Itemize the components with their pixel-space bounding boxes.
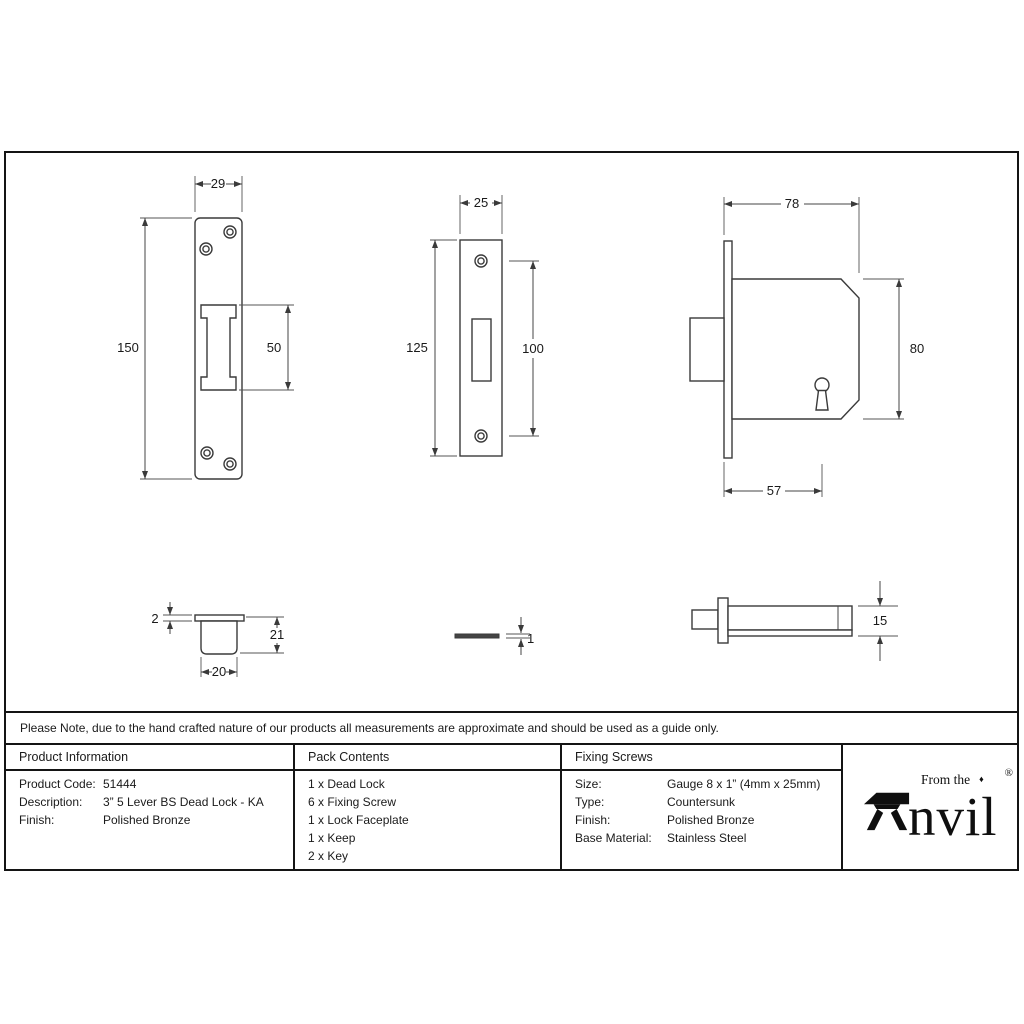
svg-text:15: 15 xyxy=(873,613,887,628)
logo-brand-text: nvil xyxy=(908,789,998,844)
product-information-header: Product Information xyxy=(6,745,295,771)
bolt-profile-view-drawing: 15 xyxy=(692,581,898,661)
svg-text:50: 50 xyxy=(267,340,281,355)
pack-item: 6 x Fixing Screw xyxy=(308,793,560,811)
dim-lock-backset: 57 xyxy=(724,462,822,498)
bolt-base-strip xyxy=(728,630,852,636)
dim-keep-plate-thickness: 2 xyxy=(151,602,192,634)
faceplate-bolt-slot xyxy=(472,319,491,381)
dim-keep-cutout-height: 50 xyxy=(239,305,294,390)
product-information-body: Product Code:51444 Description:3” 5 Leve… xyxy=(6,771,295,869)
product-info-table: Product Information Pack Contents Fixing… xyxy=(6,745,1017,869)
dim-faceplate-screw-centres: 100 xyxy=(509,261,544,436)
svg-text:80: 80 xyxy=(910,341,924,356)
svg-text:21: 21 xyxy=(270,627,284,642)
svg-text:150: 150 xyxy=(117,340,139,355)
finish-row: Finish:Polished Bronze xyxy=(19,811,293,829)
description-row: Description:3” 5 Lever BS Dead Lock - KA xyxy=(19,793,293,811)
faceplate-front-view-drawing: 25 125 100 xyxy=(406,195,544,456)
svg-text:125: 125 xyxy=(406,340,428,355)
pack-item: 1 x Dead Lock xyxy=(308,775,560,793)
dim-keep-height: 150 xyxy=(117,218,192,479)
dim-lock-depth: 78 xyxy=(724,196,859,273)
svg-text:1: 1 xyxy=(527,631,534,646)
svg-text:78: 78 xyxy=(785,196,799,211)
anvil-icon xyxy=(863,786,911,834)
technical-drawings-svg: 29 150 50 xyxy=(6,153,1017,711)
dim-lock-height: 80 xyxy=(863,279,924,419)
pack-item: 2 x Key xyxy=(308,847,560,865)
pack-contents-header: Pack Contents xyxy=(295,745,562,771)
keep-profile-box xyxy=(201,621,237,654)
fixing-screws-body: Size:Gauge 8 x 1” (4mm x 25mm) Type:Coun… xyxy=(562,771,843,869)
svg-text:57: 57 xyxy=(767,483,781,498)
dim-keep-box-depth: 21 xyxy=(240,617,284,653)
lock-body-side-view-drawing: 78 80 57 xyxy=(690,196,924,498)
size-row: Size:Gauge 8 x 1” (4mm x 25mm) xyxy=(575,775,841,793)
keep-profile-view-drawing: 2 21 20 xyxy=(151,602,284,679)
pack-item: 1 x Keep xyxy=(308,829,560,847)
spec-sheet: 29 150 50 xyxy=(4,151,1019,871)
keep-profile-plate xyxy=(195,615,244,621)
type-row: Type:Countersunk xyxy=(575,793,841,811)
deadbolt xyxy=(690,318,724,381)
brand-logo-cell: From the♦ nvil ® xyxy=(843,745,1017,869)
bolt-faceplate-edge xyxy=(718,598,728,643)
pack-contents-body: 1 x Dead Lock 6 x Fixing Screw 1 x Lock … xyxy=(295,771,562,869)
dim-faceplate-height: 125 xyxy=(406,240,457,456)
technical-drawings-area: 29 150 50 xyxy=(6,153,1017,713)
bolt-tail xyxy=(692,610,718,629)
fixing-screws-header: Fixing Screws xyxy=(562,745,843,771)
keep-front-view-drawing: 29 150 50 xyxy=(117,176,294,479)
product-code-row: Product Code:51444 xyxy=(19,775,293,793)
measurement-note: Please Note, due to the hand crafted nat… xyxy=(6,713,1017,745)
dim-keep-box-width: 20 xyxy=(201,657,237,679)
svg-text:20: 20 xyxy=(212,664,226,679)
from-the-anvil-logo: From the♦ nvil ® xyxy=(863,771,1013,847)
svg-text:2: 2 xyxy=(151,611,158,626)
dim-faceplate-thickness: 1 xyxy=(506,617,534,655)
svg-text:29: 29 xyxy=(211,176,225,191)
screw-finish-row: Finish:Polished Bronze xyxy=(575,811,841,829)
faceplate-profile-view-drawing: 1 xyxy=(455,617,534,655)
pack-item: 1 x Lock Faceplate xyxy=(308,811,560,829)
dim-faceplate-width: 25 xyxy=(460,195,502,234)
svg-text:25: 25 xyxy=(474,195,488,210)
lock-faceplate-edge xyxy=(724,241,732,458)
registered-trademark-icon: ® xyxy=(1005,767,1013,779)
diamond-icon: ♦ xyxy=(979,774,984,784)
svg-text:100: 100 xyxy=(522,341,544,356)
faceplate-profile-plate xyxy=(455,634,499,638)
base-material-row: Base Material:Stainless Steel xyxy=(575,829,841,847)
dim-keep-width: 29 xyxy=(195,176,242,212)
bolt-body xyxy=(728,606,852,630)
dim-bolt-height: 15 xyxy=(858,581,898,661)
lock-case xyxy=(732,279,859,419)
note-text: Please Note, due to the hand crafted nat… xyxy=(20,721,719,735)
